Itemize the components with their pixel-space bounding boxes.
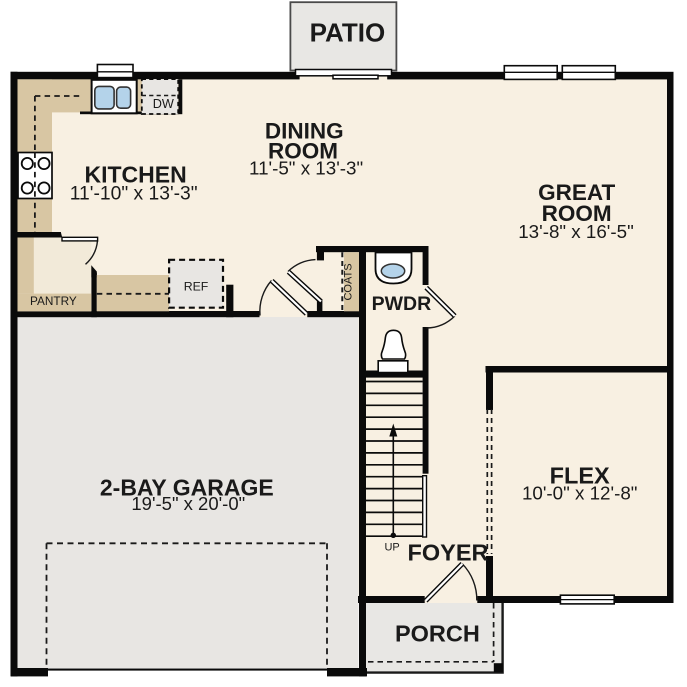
svg-text:PWDR: PWDR — [372, 293, 432, 315]
svg-text:PANTRY: PANTRY — [30, 294, 77, 308]
svg-text:PATIO: PATIO — [310, 18, 386, 48]
svg-text:UP: UP — [384, 542, 399, 554]
svg-text:11'-5" x 13'-3": 11'-5" x 13'-3" — [249, 157, 363, 178]
svg-text:DW: DW — [153, 97, 174, 111]
svg-text:COATS: COATS — [343, 263, 355, 300]
svg-text:13'-8" x 16'-5": 13'-8" x 16'-5" — [518, 221, 634, 242]
svg-text:11'-10" x 13'-3": 11'-10" x 13'-3" — [70, 183, 198, 204]
svg-text:19'-5" x 20'-0": 19'-5" x 20'-0" — [131, 493, 245, 514]
svg-text:FOYER: FOYER — [408, 540, 489, 566]
svg-text:PORCH: PORCH — [395, 621, 480, 647]
svg-text:10'-0" x 12'-8": 10'-0" x 12'-8" — [522, 483, 638, 504]
svg-text:REF: REF — [184, 280, 209, 294]
